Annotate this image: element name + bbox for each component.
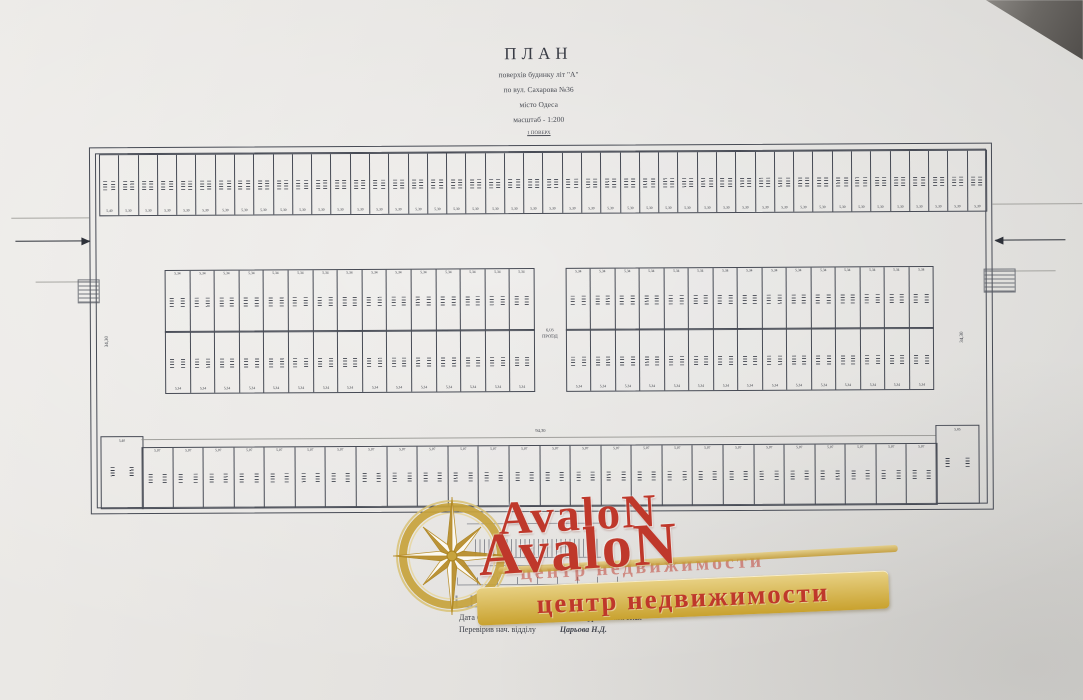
stall-dim-label: 5,34 <box>441 271 455 275</box>
parking-stall: 5,07 <box>265 447 296 507</box>
stall-dim-label: 5,07 <box>240 449 258 453</box>
parking-stall: 5,30 <box>871 151 891 211</box>
stall-dim-label: 5,30 <box>875 205 886 209</box>
parking-stall: 5,30 <box>563 153 583 213</box>
stall-dim-label: 5,34 <box>914 383 928 387</box>
parking-stall: 5,34 <box>689 329 714 390</box>
parking-stall: 5,30 <box>813 151 833 211</box>
stall-dim-label: 5,30 <box>702 206 713 210</box>
parking-stall: 5,07 <box>326 447 357 507</box>
stall-dim-label: 5,30 <box>856 205 867 209</box>
stall-row-mid-left-lower: 5,345,345,345,345,345,345,345,345,345,34… <box>165 329 535 394</box>
stall-dim-label: 5,34 <box>596 385 610 389</box>
parking-stall: 5,34 <box>762 268 787 329</box>
stall-dim-label: 5,30 <box>740 206 751 210</box>
stairs-left <box>78 279 100 303</box>
stall-dim-label: 5,07 <box>791 446 809 450</box>
stall-dim-label: 5,34 <box>294 386 308 390</box>
executor-name: Журанський П.В. <box>581 613 642 622</box>
stall-dim-label: 5,07 <box>515 447 533 451</box>
stall-dim-label: 5,30 <box>374 208 385 212</box>
corner-stall-right: 5,85 <box>935 425 979 504</box>
parking-stall: 5,30 <box>736 152 756 212</box>
stall-dim-label: 5,30 <box>162 209 173 213</box>
parking-stall: 5,30 <box>505 153 525 213</box>
plan-subtitle-city: місто Одеса <box>399 99 679 109</box>
parking-stall: 5,07 <box>357 447 388 507</box>
stall-dim-label: 5,85 <box>945 428 970 432</box>
parking-stall: 5,30 <box>486 153 506 213</box>
parking-stall: 5,34 <box>363 331 388 392</box>
stall-dim-label: 5,34 <box>441 386 455 390</box>
detail-line <box>459 511 619 513</box>
stall-dim-label: 5,07 <box>852 445 870 449</box>
driveway-edge <box>992 203 1082 204</box>
stall-dim-label: 5,07 <box>424 448 442 452</box>
parking-stall: 5,30 <box>640 152 660 212</box>
stall-dim-label: 5,30 <box>605 207 616 211</box>
stall-row-bottom: 5,075,075,075,075,075,075,075,075,075,07… <box>142 443 938 509</box>
parking-stall: 5,30 <box>196 155 216 215</box>
parking-stall: 5,30 <box>852 151 872 211</box>
stall-dim-label: 5,07 <box>577 447 595 451</box>
parking-stall: 5,34 <box>787 268 812 329</box>
driveway-edge <box>11 217 89 218</box>
parking-stall: 5,30 <box>968 151 987 211</box>
stall-row-top: 5,405,305,305,305,305,305,305,305,305,30… <box>99 150 987 217</box>
stall-dim-label: 5,34 <box>694 384 708 388</box>
stall-dim-label: 5,30 <box>277 209 288 213</box>
detail-line <box>467 523 607 525</box>
parking-stall: 5,07 <box>418 446 449 506</box>
stall-dim-label: 5,34 <box>269 387 283 391</box>
parking-stall: 5,07 <box>173 448 204 508</box>
depth-dimension-right: 34,30 <box>960 332 965 343</box>
parking-stall: 5,30 <box>775 152 795 212</box>
stall-dim-label: 5,34 <box>791 269 805 273</box>
parking-stall: 5,34 <box>616 268 641 329</box>
parking-stall: 5,07 <box>632 445 663 505</box>
detail-dimension-ticks <box>457 577 623 586</box>
stall-dim-label: 5,30 <box>721 206 732 210</box>
stall-dim-label: 5,07 <box>913 445 931 449</box>
detail-hatch <box>475 539 601 559</box>
parking-stall: 5,30 <box>890 151 910 211</box>
stairs-right <box>984 269 1016 293</box>
stall-dim-label: 5,30 <box>625 207 636 211</box>
parking-stall: 5,07 <box>815 444 846 504</box>
parking-stall: 5,34 <box>738 268 763 329</box>
stall-dim-label: 5,30 <box>644 207 655 211</box>
parking-stall: 5,34 <box>486 330 511 391</box>
parking-stall: 5,30 <box>698 152 718 212</box>
stall-dim-label: 5,34 <box>171 387 185 391</box>
parking-stall: 5,30 <box>158 155 178 215</box>
parking-stall: 5,07 <box>387 447 418 507</box>
stall-dim-label: 5,34 <box>694 269 708 273</box>
stall-dim-label: 5,30 <box>663 207 674 211</box>
parking-stall: 5,34 <box>909 267 933 328</box>
parking-stall: 5,30 <box>428 153 448 213</box>
stall-dim-label: 5,34 <box>645 385 659 389</box>
parking-stall: 5,34 <box>616 329 641 390</box>
parking-stall: 5,30 <box>408 154 428 214</box>
date-label: Дата 02.11.2007 р. <box>459 613 521 622</box>
stall-dim-label: 5,34 <box>571 270 585 274</box>
parking-stall: 5,34 <box>591 269 616 330</box>
stall-dim-label: 5,34 <box>367 271 381 275</box>
parking-stall: 5,34 <box>387 270 412 331</box>
stall-dim-label: 5,34 <box>195 272 209 276</box>
parking-stall: 5,07 <box>509 446 540 506</box>
stall-dim-label: 5,34 <box>170 272 184 276</box>
stall-dim-label: 5,07 <box>760 446 778 450</box>
parking-stall: 5,34 <box>362 270 387 331</box>
detail-footing-row <box>455 595 627 608</box>
stall-dim-label: 5,34 <box>417 386 431 390</box>
parking-stall: 5,30 <box>293 154 313 214</box>
stall-dim-label: 5,07 <box>485 447 503 451</box>
stall-dim-label: 5,30 <box>837 206 848 210</box>
parking-stall: 5,34 <box>289 270 314 331</box>
stall-dim-label: 5,07 <box>546 447 564 451</box>
stall-dim-label: 5,34 <box>515 385 529 389</box>
stall-dim-label: 5,34 <box>767 269 781 273</box>
stall-dim-label: 5,34 <box>743 384 757 388</box>
stall-dim-label: 5,34 <box>743 269 757 273</box>
parking-stall: 5,34 <box>689 268 714 329</box>
parking-stall: 5,34 <box>436 269 461 330</box>
stall-dim-label: 5,34 <box>889 268 903 272</box>
parking-stall: 5,07 <box>204 448 235 508</box>
signature-block: Дата 02.11.2007 р. Виконав Журанський П.… <box>459 612 642 636</box>
parking-stall: 5,30 <box>543 153 563 213</box>
checker-role: Перевірив нач. відділу <box>459 625 536 634</box>
parking-stall: 5,34 <box>909 328 933 389</box>
parking-stall: 5,30 <box>235 155 255 215</box>
stall-dim-label: 5,30 <box>509 207 520 211</box>
parking-stall: 5,07 <box>907 444 937 504</box>
parking-stall: 5,34 <box>240 331 265 392</box>
stall-dim-label: 5,34 <box>269 272 283 276</box>
stall-dim-label: 5,07 <box>882 445 900 449</box>
parking-stall: 5,07 <box>723 445 754 505</box>
parking-stall: 5,34 <box>239 270 264 331</box>
parking-stall: 5,34 <box>860 267 885 328</box>
stall-dim-label: 5,34 <box>466 386 480 390</box>
stall-dim-label: 5,07 <box>821 446 839 450</box>
stall-dim-label: 5,07 <box>148 449 166 453</box>
stall-dim-label: 5,34 <box>220 387 234 391</box>
parking-stall: 5,34 <box>567 269 592 330</box>
stall-dim-label: 5,07 <box>210 449 228 453</box>
parking-stall: 5,30 <box>274 154 294 214</box>
stall-dim-label: 5,30 <box>894 205 905 209</box>
parking-stall: 5,34 <box>166 332 191 393</box>
stall-dim-label: 5,30 <box>759 206 770 210</box>
parking-stall: 5,34 <box>713 268 738 329</box>
stall-dim-label: 5,30 <box>914 205 925 209</box>
parking-stall: 5,30 <box>948 151 968 211</box>
stall-dim-label: 5,30 <box>181 209 192 213</box>
parking-stall: 5,34 <box>412 331 437 392</box>
parking-stall: 5,30 <box>794 152 814 212</box>
stall-dim-label: 5,34 <box>840 269 854 273</box>
stall-dim-label: 5,34 <box>244 272 258 276</box>
arrowhead-icon <box>81 237 90 245</box>
stall-dim-label: 5,34 <box>392 271 406 275</box>
stall-dim-label: 5,30 <box>547 207 558 211</box>
parking-stall: 5,34 <box>461 269 486 330</box>
stall-dim-label: 5,34 <box>914 268 928 272</box>
stall-dim-label: 5,34 <box>621 385 635 389</box>
parking-stall: 5,34 <box>640 268 665 329</box>
stall-dim-label: 5,30 <box>972 205 983 209</box>
parking-stall: 5,30 <box>312 154 332 214</box>
stall-dim-label: 5,30 <box>142 209 153 213</box>
plan-scale: масштаб - 1:200 <box>399 114 679 124</box>
parking-stall: 5,30 <box>621 152 641 212</box>
stall-dim-label: 5,30 <box>490 207 501 211</box>
executor-role: Виконав <box>537 613 566 622</box>
parking-stall: 5,34 <box>836 267 861 328</box>
parking-stall: 5,34 <box>190 332 215 393</box>
stall-dim-label: 5,07 <box>301 448 319 452</box>
stall-dim-label: 5,30 <box>335 208 346 212</box>
section-detail-sketch <box>453 503 632 616</box>
length-dimension-label: 94,30 <box>522 429 558 435</box>
plan-subtitle-building: поверхів будинку літ "А" <box>399 69 679 79</box>
stall-dim-label: 5,30 <box>682 206 693 210</box>
stall-rows: 5,405,305,305,305,305,305,305,305,305,30… <box>0 0 1081 3</box>
stall-row-mid-left-upper: 5,345,345,345,345,345,345,345,345,345,34… <box>165 268 535 333</box>
parking-stall: 5,34 <box>738 329 763 390</box>
stall-dim-label: 5,34 <box>718 269 732 273</box>
stall-dim-label: 5,34 <box>890 383 904 387</box>
stall-dim-label: 5,34 <box>318 386 332 390</box>
stall-dim-label: 5,07 <box>729 446 747 450</box>
stall-dim-label: 5,34 <box>293 271 307 275</box>
stall-dim-label: 5,34 <box>515 270 529 274</box>
corner-stall-left: 5,40 <box>100 436 143 509</box>
stall-dim-label: 5,34 <box>645 270 659 274</box>
parking-stall: 5,34 <box>591 330 616 391</box>
parking-stall: 5,30 <box>119 155 139 215</box>
parking-stall: 5,07 <box>540 446 571 506</box>
stall-dim-label: 5,34 <box>719 384 733 388</box>
stall-dim-label: 5,30 <box>528 207 539 211</box>
stall-dim-label: 5,34 <box>865 383 879 387</box>
parking-stall: 5,30 <box>910 151 930 211</box>
stall-dim-label: 5,30 <box>220 209 231 213</box>
parking-stall: 5,34 <box>567 330 592 391</box>
signature-line-1: Дата 02.11.2007 р. Виконав Журанський П.… <box>459 612 642 624</box>
stall-dim-label: 5,34 <box>596 270 610 274</box>
parking-stall: 5,34 <box>313 270 338 331</box>
parking-stall: 5,34 <box>861 328 886 389</box>
parking-stall: 5,07 <box>234 447 265 507</box>
parking-stall: 5,30 <box>216 155 236 215</box>
aisle-label: 6,05 ПРОЇЗД <box>530 329 570 341</box>
stall-dim-label: 5,34 <box>865 268 879 272</box>
stall-dim-label: 5,34 <box>816 269 830 273</box>
title-block: ПЛАН поверхів будинку літ "А" по вул. Са… <box>398 43 678 136</box>
parking-stall: 5,34 <box>836 328 861 389</box>
parking-stall: 5,30 <box>447 153 467 213</box>
stall-dim-label: 5,34 <box>669 269 683 273</box>
parking-stall: 5,30 <box>524 153 544 213</box>
stall-dim-label: 5,34 <box>817 384 831 388</box>
parking-stall: 5,30 <box>582 153 602 213</box>
stall-dim-label: 5,07 <box>699 446 717 450</box>
entry-arrow-left <box>15 240 89 241</box>
stall-dim-label: 5,34 <box>491 385 505 389</box>
stall-dim-label: 5,34 <box>318 271 332 275</box>
parking-stall: 5,30 <box>254 154 274 214</box>
parking-stall: 5,34 <box>461 330 486 391</box>
parking-stall: 5,34 <box>264 331 289 392</box>
parking-stall: 5,34 <box>787 329 812 390</box>
parking-stall: 5,30 <box>833 151 853 211</box>
parking-stall: 5,34 <box>812 328 837 389</box>
parking-stall: 5,34 <box>412 270 437 331</box>
parking-stall: 5,34 <box>665 329 690 390</box>
parking-stall: 5,30 <box>139 155 159 215</box>
parking-stall: 5,34 <box>664 268 689 329</box>
parking-stall: 5,07 <box>448 446 479 506</box>
plan-title: ПЛАН <box>398 43 678 64</box>
parking-stall: 5,30 <box>389 154 409 214</box>
detail-line <box>461 565 617 567</box>
stall-dim-label: 5,30 <box>412 208 423 212</box>
stall-dim-label: 5,34 <box>670 384 684 388</box>
depth-dimension-left: 34,30 <box>105 336 110 347</box>
parking-stall: 5,34 <box>338 331 363 392</box>
parking-stall: 5,30 <box>756 152 776 212</box>
parking-stall: 5,07 <box>693 445 724 505</box>
stall-dim-label: 5,34 <box>245 387 259 391</box>
parking-stall: 5,34 <box>885 328 910 389</box>
parking-stall: 5,07 <box>143 448 174 508</box>
parking-stall: 5,30 <box>351 154 371 214</box>
stall-dim-label: 5,40 <box>110 439 135 443</box>
stall-dim-label: 5,30 <box>316 208 327 212</box>
parking-stall: 5,34 <box>485 269 510 330</box>
parking-stall: 5,07 <box>846 444 877 504</box>
stall-dim-label: 5,34 <box>490 270 504 274</box>
parking-stall: 5,34 <box>264 270 289 331</box>
stall-dim-label: 5,30 <box>451 208 462 212</box>
stall-dim-label: 5,30 <box>586 207 597 211</box>
stall-dim-label: 5,30 <box>952 205 963 209</box>
parking-stall: 5,34 <box>387 331 412 392</box>
parking-stall: 5,07 <box>876 444 907 504</box>
stall-dim-label: 5,30 <box>817 206 828 210</box>
stall-dim-label: 5,34 <box>768 384 782 388</box>
stall-dim-label: 5,30 <box>123 209 134 213</box>
parking-stall: 5,30 <box>177 155 197 215</box>
parking-stall: 5,34 <box>338 270 363 331</box>
stall-dim-label: 5,30 <box>200 209 211 213</box>
parking-stall: 5,34 <box>763 329 788 390</box>
parking-stall: 5,34 <box>215 332 240 393</box>
stall-dim-label: 5,07 <box>454 448 472 452</box>
parking-stall: 5,34 <box>436 330 461 391</box>
parking-stall: 5,40 <box>100 155 120 215</box>
parking-stall: 5,30 <box>601 153 621 213</box>
parking-stall: 5,34 <box>885 267 910 328</box>
parking-stall: 5,30 <box>331 154 351 214</box>
parking-stall: 5,30 <box>929 151 949 211</box>
stall-dim-label: 5,30 <box>258 209 269 213</box>
stall-dim-label: 5,07 <box>668 446 686 450</box>
photographed-floor-plan: ПЛАН поверхів будинку літ "А" по вул. Са… <box>0 0 1083 700</box>
parking-stall: 5,07 <box>571 446 602 506</box>
stall-dim-label: 5,07 <box>638 447 656 451</box>
plan-subtitle-address: по вул. Сахарова №36 <box>399 84 679 94</box>
stall-dim-label: 5,07 <box>362 448 380 452</box>
parking-stall: 5,34 <box>289 331 314 392</box>
parking-stall: 5,07 <box>785 445 816 505</box>
parking-stall: 5,30 <box>659 152 679 212</box>
stall-dim-label: 5,30 <box>933 205 944 209</box>
stall-dim-label: 5,30 <box>393 208 404 212</box>
stall-dim-label: 5,07 <box>607 447 625 451</box>
stall-dim-label: 5,07 <box>393 448 411 452</box>
stall-dim-label: 5,30 <box>355 208 366 212</box>
stall-dim-label: 5,34 <box>392 386 406 390</box>
stall-dim-label: 5,07 <box>332 448 350 452</box>
stall-dim-label: 5,34 <box>620 270 634 274</box>
parking-stall: 5,34 <box>190 271 215 332</box>
parking-stall: 5,30 <box>717 152 737 212</box>
parking-stall: 5,34 <box>313 331 338 392</box>
stall-dim-label: 5,30 <box>432 208 443 212</box>
parking-stall: 5,34 <box>714 329 739 390</box>
stall-dim-label: 5,34 <box>196 387 210 391</box>
stall-row-mid-right-lower: 5,345,345,345,345,345,345,345,345,345,34… <box>566 327 934 392</box>
stall-dim-label: 5,34 <box>792 384 806 388</box>
stall-dim-label: 5,34 <box>572 385 586 389</box>
signature-line-2: Перевірив нач. відділу Царьова Н.Д. <box>459 624 642 636</box>
stall-dim-label: 5,34 <box>343 386 357 390</box>
stall-dim-label: 5,30 <box>567 207 578 211</box>
stall-dim-label: 5,40 <box>104 209 115 213</box>
parking-stall: 5,30 <box>370 154 390 214</box>
stall-dim-label: 5,07 <box>179 449 197 453</box>
floor-plan-drawing: ПЛАН поверхів будинку літ "А" по вул. Са… <box>0 0 1083 700</box>
parking-stall: 5,34 <box>510 269 534 330</box>
stall-row-mid-right-upper: 5,345,345,345,345,345,345,345,345,345,34… <box>566 266 934 331</box>
stall-dim-label: 5,34 <box>416 271 430 275</box>
stall-dim-label: 5,30 <box>798 206 809 210</box>
aisle-name: ПРОЇЗД <box>530 334 570 340</box>
stall-dim-label: 5,07 <box>271 449 289 453</box>
floor-label: 1 ПОВЕРХ <box>399 130 679 136</box>
parking-stall: 5,07 <box>479 446 510 506</box>
stall-dim-label: 5,30 <box>779 206 790 210</box>
parking-stall: 5,30 <box>466 153 486 213</box>
entry-arrow-right <box>995 239 1065 240</box>
parking-stall: 5,07 <box>754 445 785 505</box>
stall-dim-label: 5,30 <box>297 208 308 212</box>
arrowhead-icon <box>994 236 1003 244</box>
parking-stall: 5,07 <box>601 446 632 506</box>
stall-dim-label: 5,30 <box>470 208 481 212</box>
stall-dim-label: 5,34 <box>219 272 233 276</box>
parking-stall: 5,34 <box>166 271 191 332</box>
stall-dim-label: 5,30 <box>239 209 250 213</box>
